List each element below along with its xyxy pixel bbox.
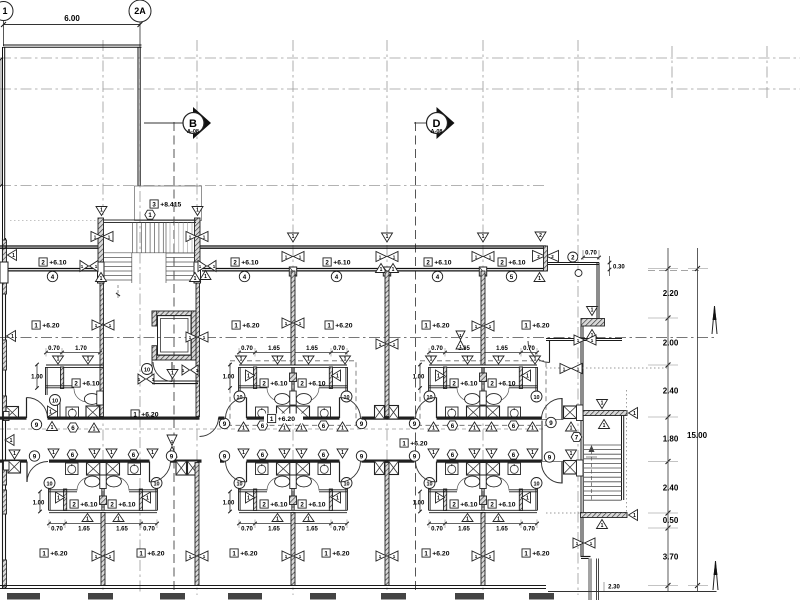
svg-text:1.00: 1.00 bbox=[413, 501, 425, 507]
svg-text:1: 1 bbox=[300, 450, 303, 456]
svg-text:+6.10: +6.10 bbox=[241, 260, 258, 267]
svg-text:0.70: 0.70 bbox=[48, 346, 60, 352]
svg-text:1: 1 bbox=[242, 426, 245, 432]
svg-text:0.50: 0.50 bbox=[663, 516, 679, 525]
svg-text:6: 6 bbox=[451, 452, 455, 459]
svg-text:2: 2 bbox=[539, 233, 542, 239]
svg-text:1: 1 bbox=[87, 357, 90, 363]
svg-text:1: 1 bbox=[93, 450, 96, 456]
svg-text:1: 1 bbox=[570, 426, 573, 432]
svg-text:1.65: 1.65 bbox=[268, 527, 280, 533]
svg-text:10: 10 bbox=[533, 481, 539, 487]
svg-text:1: 1 bbox=[86, 517, 89, 523]
svg-text:1: 1 bbox=[402, 440, 406, 447]
svg-text:0.30: 0.30 bbox=[613, 265, 625, 271]
svg-text:10: 10 bbox=[144, 367, 150, 373]
svg-text:1: 1 bbox=[146, 496, 149, 502]
svg-text:0.70: 0.70 bbox=[585, 251, 597, 257]
svg-text:2: 2 bbox=[426, 259, 430, 266]
svg-text:1.65: 1.65 bbox=[496, 527, 508, 533]
svg-text:2: 2 bbox=[72, 501, 76, 508]
svg-text:+6.10: +6.10 bbox=[308, 502, 325, 509]
svg-text:1.65: 1.65 bbox=[268, 346, 280, 352]
svg-text:9: 9 bbox=[413, 453, 417, 460]
svg-text:+6.10: +6.10 bbox=[508, 260, 525, 267]
svg-text:1: 1 bbox=[247, 496, 250, 502]
svg-text:2: 2 bbox=[74, 380, 78, 387]
svg-text:1: 1 bbox=[34, 322, 38, 329]
svg-text:1: 1 bbox=[283, 426, 286, 432]
svg-text:1: 1 bbox=[307, 517, 310, 523]
svg-text:+6.10: +6.10 bbox=[270, 502, 287, 509]
svg-text:1: 1 bbox=[283, 450, 286, 456]
svg-text:0.70: 0.70 bbox=[241, 346, 253, 352]
svg-text:9: 9 bbox=[223, 453, 227, 460]
svg-text:2: 2 bbox=[490, 501, 494, 508]
svg-text:1: 1 bbox=[424, 550, 428, 557]
svg-text:+6.20: +6.20 bbox=[432, 323, 449, 330]
svg-text:1: 1 bbox=[324, 550, 328, 557]
svg-text:+8.415: +8.415 bbox=[160, 202, 181, 209]
svg-text:1.65: 1.65 bbox=[496, 346, 508, 352]
svg-text:0.70: 0.70 bbox=[523, 346, 535, 352]
svg-text:1: 1 bbox=[524, 322, 528, 329]
svg-text:6: 6 bbox=[322, 423, 326, 430]
svg-text:2: 2 bbox=[110, 501, 114, 508]
svg-text:2: 2 bbox=[490, 380, 494, 387]
svg-text:1: 1 bbox=[466, 517, 469, 523]
svg-text:A-08: A-08 bbox=[187, 129, 199, 135]
svg-text:1: 1 bbox=[432, 426, 435, 432]
svg-text:2.40: 2.40 bbox=[663, 387, 679, 396]
svg-text:1: 1 bbox=[591, 308, 594, 314]
svg-text:15.00: 15.00 bbox=[687, 431, 708, 440]
svg-text:9: 9 bbox=[360, 421, 364, 428]
svg-text:1: 1 bbox=[307, 357, 310, 363]
svg-text:1: 1 bbox=[524, 550, 528, 557]
svg-text:6: 6 bbox=[71, 452, 75, 459]
svg-text:+6.10: +6.10 bbox=[270, 381, 287, 388]
svg-text:1: 1 bbox=[490, 450, 493, 456]
svg-text:0.70: 0.70 bbox=[431, 346, 443, 352]
svg-text:+6.20: +6.20 bbox=[50, 551, 67, 558]
svg-text:1: 1 bbox=[247, 374, 250, 380]
svg-text:1: 1 bbox=[100, 276, 103, 282]
svg-text:1.00: 1.00 bbox=[223, 501, 235, 507]
svg-text:+6.10: +6.10 bbox=[118, 502, 135, 509]
svg-text:1.65: 1.65 bbox=[116, 527, 128, 533]
svg-text:1: 1 bbox=[240, 357, 243, 363]
svg-text:1: 1 bbox=[327, 322, 331, 329]
svg-text:1: 1 bbox=[57, 496, 60, 502]
svg-text:6: 6 bbox=[71, 425, 75, 432]
svg-text:+6.20: +6.20 bbox=[432, 551, 449, 558]
svg-text:1: 1 bbox=[380, 267, 383, 273]
svg-text:1: 1 bbox=[276, 357, 279, 363]
svg-text:2: 2 bbox=[41, 259, 45, 266]
svg-text:9: 9 bbox=[548, 454, 552, 461]
svg-text:+6.20: +6.20 bbox=[410, 441, 427, 448]
svg-text:7: 7 bbox=[575, 434, 579, 441]
svg-text:1: 1 bbox=[270, 416, 274, 423]
svg-text:6.00: 6.00 bbox=[64, 14, 80, 23]
svg-text:6: 6 bbox=[451, 423, 455, 430]
svg-text:1: 1 bbox=[601, 523, 604, 529]
svg-text:1: 1 bbox=[526, 374, 529, 380]
svg-text:1: 1 bbox=[473, 426, 476, 432]
svg-text:+6.20: +6.20 bbox=[147, 551, 164, 558]
svg-text:9: 9 bbox=[360, 453, 364, 460]
svg-text:0.70: 0.70 bbox=[431, 527, 443, 533]
svg-text:2A: 2A bbox=[134, 6, 146, 16]
svg-text:1: 1 bbox=[432, 450, 435, 456]
svg-text:+6.20: +6.20 bbox=[242, 323, 259, 330]
svg-text:1: 1 bbox=[437, 496, 440, 502]
svg-text:1: 1 bbox=[473, 450, 476, 456]
svg-text:1: 1 bbox=[151, 450, 154, 456]
svg-text:1: 1 bbox=[10, 438, 13, 444]
svg-text:1: 1 bbox=[386, 234, 389, 240]
svg-text:2: 2 bbox=[262, 380, 266, 387]
svg-text:1: 1 bbox=[633, 513, 636, 519]
svg-text:1: 1 bbox=[601, 401, 604, 407]
svg-text:4: 4 bbox=[51, 274, 55, 281]
svg-text:A-08: A-08 bbox=[431, 129, 443, 135]
svg-text:1: 1 bbox=[51, 425, 54, 431]
svg-text:1: 1 bbox=[344, 357, 347, 363]
svg-text:+6.10: +6.10 bbox=[80, 502, 97, 509]
svg-text:1: 1 bbox=[242, 450, 245, 456]
svg-text:+6.10: +6.10 bbox=[460, 381, 477, 388]
svg-text:6: 6 bbox=[132, 452, 136, 459]
svg-text:1: 1 bbox=[430, 357, 433, 363]
svg-text:+6.20: +6.20 bbox=[42, 323, 59, 330]
svg-text:+6.20: +6.20 bbox=[532, 323, 549, 330]
svg-text:10: 10 bbox=[236, 481, 242, 487]
svg-text:0.70: 0.70 bbox=[333, 346, 345, 352]
svg-text:+6.20: +6.20 bbox=[278, 416, 295, 423]
svg-text:6: 6 bbox=[261, 452, 265, 459]
svg-text:1: 1 bbox=[538, 276, 541, 282]
svg-text:0.70: 0.70 bbox=[241, 527, 253, 533]
svg-text:4: 4 bbox=[335, 274, 339, 281]
svg-text:2: 2 bbox=[452, 380, 456, 387]
svg-text:9: 9 bbox=[33, 453, 37, 460]
svg-text:9: 9 bbox=[170, 453, 174, 460]
svg-text:1: 1 bbox=[139, 550, 143, 557]
svg-text:1: 1 bbox=[2, 6, 7, 16]
svg-text:1: 1 bbox=[52, 450, 55, 456]
svg-text:+6.20: +6.20 bbox=[335, 323, 352, 330]
svg-text:0.70: 0.70 bbox=[51, 527, 63, 533]
svg-text:10: 10 bbox=[343, 481, 349, 487]
svg-text:1: 1 bbox=[300, 426, 303, 432]
svg-text:2: 2 bbox=[452, 501, 456, 508]
svg-text:1.00: 1.00 bbox=[31, 375, 43, 381]
svg-text:1: 1 bbox=[392, 267, 395, 273]
svg-text:1: 1 bbox=[603, 423, 606, 429]
svg-text:2: 2 bbox=[300, 380, 304, 387]
svg-text:2: 2 bbox=[233, 259, 237, 266]
svg-text:6: 6 bbox=[261, 423, 265, 430]
svg-text:1: 1 bbox=[497, 517, 500, 523]
svg-text:+6.10: +6.10 bbox=[434, 260, 451, 267]
svg-text:+6.10: +6.10 bbox=[333, 260, 350, 267]
svg-text:0.70: 0.70 bbox=[523, 527, 535, 533]
svg-text:+6.10: +6.10 bbox=[49, 260, 66, 267]
svg-text:1: 1 bbox=[534, 357, 537, 363]
svg-text:1: 1 bbox=[194, 276, 197, 282]
svg-text:1: 1 bbox=[232, 550, 236, 557]
svg-text:0.70: 0.70 bbox=[333, 527, 345, 533]
svg-text:2.00: 2.00 bbox=[663, 339, 679, 348]
svg-text:1.65: 1.65 bbox=[306, 346, 318, 352]
svg-text:1.65: 1.65 bbox=[458, 527, 470, 533]
svg-text:+6.10: +6.10 bbox=[308, 381, 325, 388]
svg-text:1: 1 bbox=[531, 426, 534, 432]
svg-text:6: 6 bbox=[512, 423, 516, 430]
svg-text:1: 1 bbox=[466, 357, 469, 363]
svg-text:4: 4 bbox=[436, 274, 440, 281]
svg-text:1: 1 bbox=[196, 208, 199, 214]
svg-text:2: 2 bbox=[500, 259, 504, 266]
svg-text:9: 9 bbox=[223, 421, 227, 428]
svg-text:1: 1 bbox=[497, 357, 500, 363]
svg-text:2.30: 2.30 bbox=[608, 585, 620, 591]
svg-text:1: 1 bbox=[12, 253, 15, 259]
svg-text:10: 10 bbox=[153, 481, 159, 487]
svg-text:1.00: 1.00 bbox=[413, 375, 425, 381]
svg-text:10: 10 bbox=[52, 398, 58, 404]
svg-text:1: 1 bbox=[42, 550, 46, 557]
svg-text:1: 1 bbox=[13, 451, 16, 457]
svg-text:1: 1 bbox=[171, 371, 174, 377]
svg-text:2.20: 2.20 bbox=[663, 289, 679, 298]
svg-text:1.80: 1.80 bbox=[663, 435, 679, 444]
svg-text:10: 10 bbox=[426, 481, 432, 487]
svg-text:9: 9 bbox=[549, 420, 553, 427]
svg-text:1: 1 bbox=[336, 374, 339, 380]
svg-text:10: 10 bbox=[533, 395, 539, 401]
svg-text:+6.20: +6.20 bbox=[240, 551, 257, 558]
svg-text:1: 1 bbox=[526, 496, 529, 502]
svg-text:1: 1 bbox=[490, 426, 493, 432]
svg-text:+6.20: +6.20 bbox=[332, 551, 349, 558]
svg-text:1: 1 bbox=[49, 410, 52, 416]
svg-text:1: 1 bbox=[437, 374, 440, 380]
svg-text:+6.10: +6.10 bbox=[498, 502, 515, 509]
svg-text:3.70: 3.70 bbox=[663, 553, 679, 562]
svg-text:6: 6 bbox=[512, 452, 516, 459]
svg-text:1: 1 bbox=[292, 234, 295, 240]
svg-text:6: 6 bbox=[322, 452, 326, 459]
svg-text:1.65: 1.65 bbox=[78, 527, 90, 533]
svg-text:2: 2 bbox=[325, 259, 329, 266]
svg-text:1: 1 bbox=[57, 357, 60, 363]
svg-text:1: 1 bbox=[341, 426, 344, 432]
svg-text:1: 1 bbox=[117, 517, 120, 523]
svg-text:3: 3 bbox=[152, 201, 156, 208]
svg-text:1: 1 bbox=[276, 517, 279, 523]
svg-text:1: 1 bbox=[424, 322, 428, 329]
svg-text:5: 5 bbox=[510, 274, 514, 281]
svg-text:1: 1 bbox=[482, 234, 485, 240]
svg-text:1: 1 bbox=[204, 274, 207, 280]
svg-text:2: 2 bbox=[262, 501, 266, 508]
svg-text:1: 1 bbox=[234, 322, 238, 329]
svg-text:+6.10: +6.10 bbox=[82, 381, 99, 388]
svg-text:4: 4 bbox=[243, 274, 247, 281]
svg-text:10: 10 bbox=[46, 481, 52, 487]
svg-text:0.70: 0.70 bbox=[143, 527, 155, 533]
svg-text:+6.20: +6.20 bbox=[532, 551, 549, 558]
svg-text:1: 1 bbox=[100, 208, 103, 214]
svg-text:1: 1 bbox=[570, 451, 573, 457]
svg-text:1.00: 1.00 bbox=[33, 501, 45, 507]
svg-text:+6.10: +6.10 bbox=[460, 502, 477, 509]
svg-text:1.70: 1.70 bbox=[75, 346, 87, 352]
svg-text:+6.10: +6.10 bbox=[498, 381, 515, 388]
svg-text:1: 1 bbox=[93, 427, 96, 433]
svg-text:1: 1 bbox=[336, 496, 339, 502]
svg-text:2: 2 bbox=[300, 501, 304, 508]
svg-text:1: 1 bbox=[633, 411, 636, 417]
svg-text:1: 1 bbox=[11, 334, 14, 340]
svg-text:9: 9 bbox=[413, 421, 417, 428]
svg-text:1.65: 1.65 bbox=[306, 527, 318, 533]
svg-text:1.00: 1.00 bbox=[223, 375, 235, 381]
svg-text:1: 1 bbox=[341, 450, 344, 456]
svg-text:2.40: 2.40 bbox=[663, 484, 679, 493]
svg-text:9: 9 bbox=[35, 422, 39, 429]
svg-text:1: 1 bbox=[531, 450, 534, 456]
svg-text:1: 1 bbox=[110, 450, 113, 456]
